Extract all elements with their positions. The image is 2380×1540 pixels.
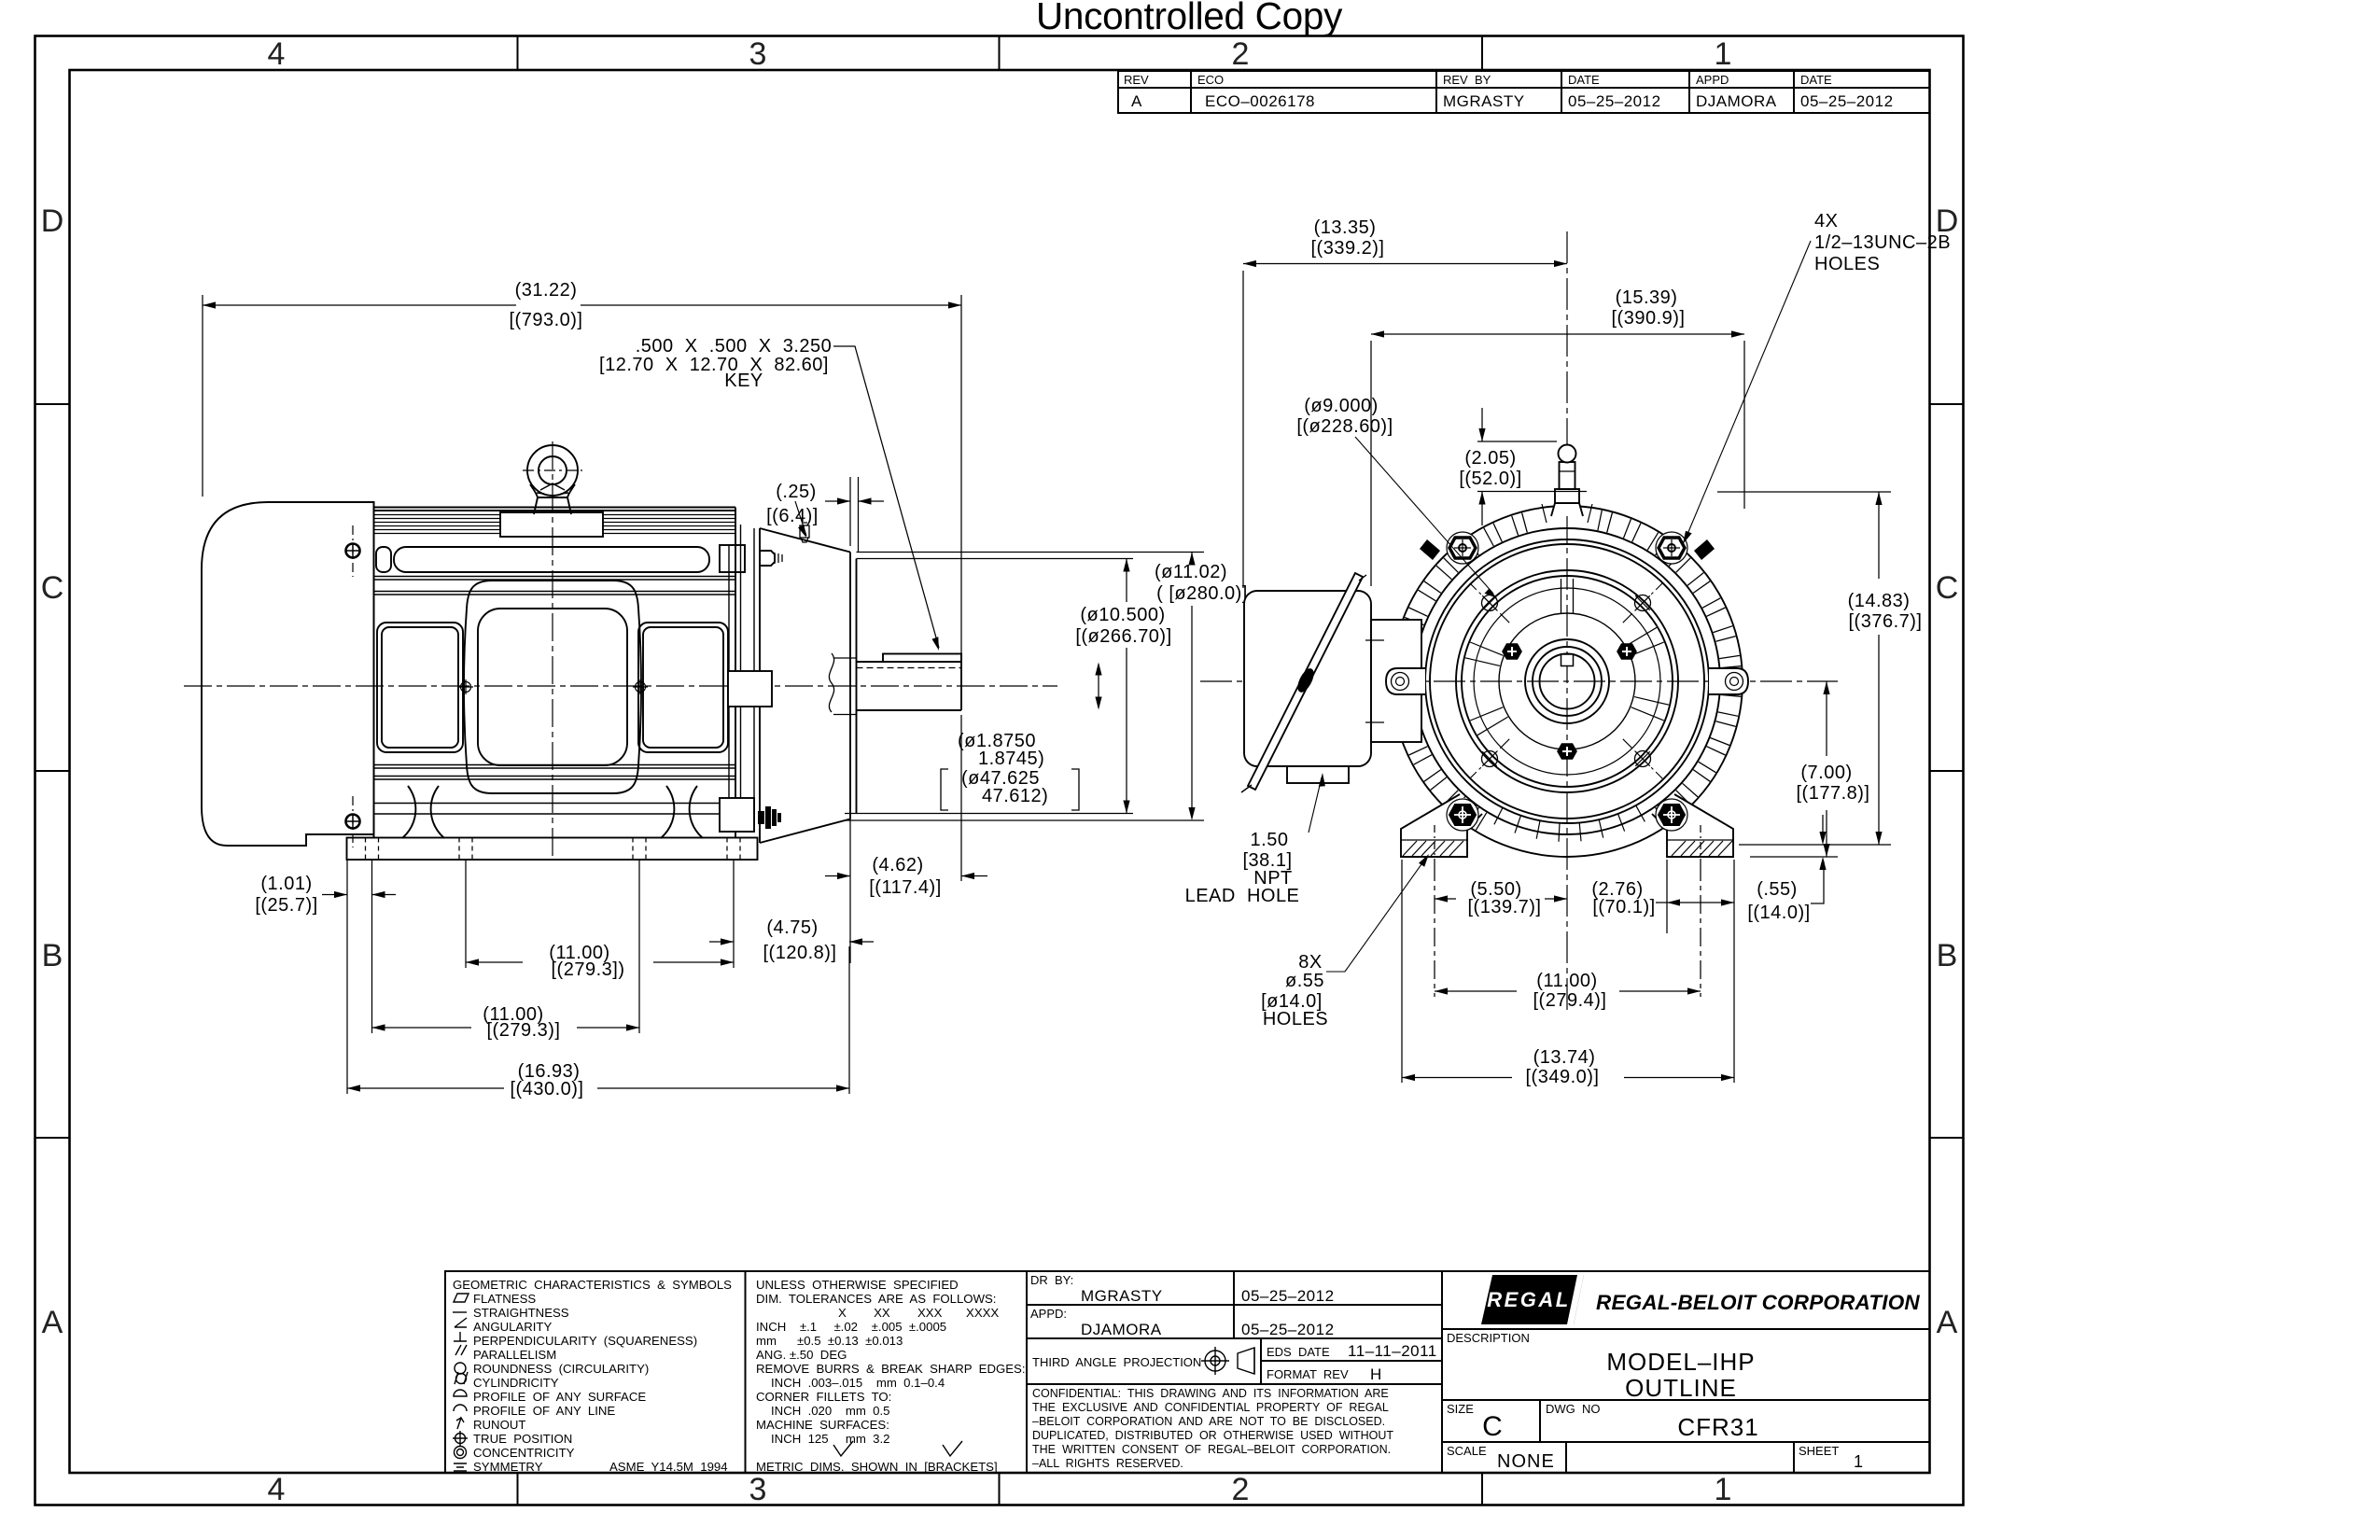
- svg-text:RUNOUT: RUNOUT: [473, 1418, 525, 1432]
- svg-text:[(139.7)]: [(139.7)]: [1468, 897, 1542, 917]
- svg-text:8X: 8X: [1298, 952, 1322, 973]
- svg-text:H: H: [1370, 1365, 1382, 1383]
- svg-text:[(793.0)]: [(793.0)]: [510, 310, 583, 330]
- svg-text:REV: REV: [1124, 73, 1149, 87]
- svg-text:ø.55: ø.55: [1285, 971, 1324, 991]
- svg-text:[(70.1)]: [(70.1)]: [1592, 897, 1655, 917]
- svg-text:(15.39): (15.39): [1616, 287, 1678, 308]
- svg-text:[(ø266.70)]: [(ø266.70)]: [1075, 626, 1171, 647]
- svg-text:[(279.3]): [(279.3]): [552, 959, 625, 980]
- svg-text:FLATNESS: FLATNESS: [473, 1292, 536, 1306]
- svg-text:(13.35): (13.35): [1314, 217, 1377, 238]
- svg-text:METRIC DIMS. SHOWN IN [BRA: METRIC DIMS. SHOWN IN [BRACKETS]: [756, 1460, 998, 1474]
- svg-text:C: C: [1936, 570, 1959, 606]
- svg-text:4X: 4X: [1814, 211, 1838, 231]
- svg-text:SHEET: SHEET: [1799, 1444, 1839, 1458]
- svg-text:DR BY:: DR BY:: [1030, 1273, 1073, 1287]
- svg-text:SYMMETRY: SYMMETRY: [473, 1460, 543, 1474]
- svg-text:[(279.4)]: [(279.4)]: [1533, 990, 1607, 1011]
- svg-text:B: B: [1937, 938, 1958, 973]
- svg-text:DATE: DATE: [1800, 73, 1832, 87]
- svg-text:[(14.0)]: [(14.0)]: [1747, 903, 1810, 923]
- svg-text:MGRASTY: MGRASTY: [1081, 1287, 1163, 1305]
- svg-text:C: C: [1482, 1411, 1503, 1442]
- svg-text:REMOVE BURRS & BREAK SHARP: REMOVE BURRS & BREAK SHARP EDGES:: [756, 1362, 1026, 1376]
- svg-text:INCH 125 mm 3.2: INCH 125 mm 3.2: [771, 1432, 890, 1446]
- svg-text:PROFILE OF ANY LINE: PROFILE OF ANY LINE: [473, 1404, 615, 1418]
- svg-text:DESCRIPTION: DESCRIPTION: [1447, 1331, 1530, 1345]
- svg-text:CONFIDENTIAL: THIS DRAWING: CONFIDENTIAL: THIS DRAWING AND ITS INFOR…: [1032, 1387, 1389, 1400]
- svg-text:–ALL RIGHTS RESERVED.: –ALL RIGHTS RESERVED.: [1032, 1457, 1183, 1470]
- svg-text:( [ø280.0)]: ( [ø280.0)]: [1156, 583, 1248, 604]
- svg-text:DWG NO: DWG NO: [1546, 1402, 1601, 1416]
- svg-text:3: 3: [749, 1472, 767, 1507]
- svg-text:1.50: 1.50: [1251, 830, 1289, 850]
- svg-text:OUTLINE: OUTLINE: [1625, 1374, 1737, 1402]
- svg-text:HOLES: HOLES: [1263, 1009, 1328, 1029]
- svg-text:05–25–2012: 05–25–2012: [1241, 1287, 1335, 1305]
- svg-text:FORMAT REV: FORMAT REV: [1267, 1367, 1349, 1381]
- svg-text:(31.22): (31.22): [515, 280, 578, 301]
- svg-text:ROUNDNESS (CIRCULARITY): ROUNDNESS (CIRCULARITY): [473, 1362, 649, 1376]
- svg-text:[(349.0)]: [(349.0)]: [1526, 1067, 1600, 1087]
- svg-text:(13.74): (13.74): [1533, 1047, 1596, 1068]
- svg-text:05–25–2012: 05–25–2012: [1568, 92, 1661, 110]
- svg-text:A: A: [1937, 1305, 1958, 1340]
- svg-text:REGAL-BELOIT CORPORATION: REGAL-BELOIT CORPORATION: [1596, 1291, 1920, 1314]
- svg-text:PARALLELISM: PARALLELISM: [473, 1348, 556, 1362]
- svg-text:EDS DATE: EDS DATE: [1267, 1345, 1330, 1359]
- svg-text:APPD:: APPD:: [1030, 1307, 1067, 1321]
- svg-text:INCH .003–.015 mm 0.1–0.4: INCH .003–.015 mm 0.1–0.4: [771, 1376, 945, 1390]
- svg-text:NONE: NONE: [1497, 1451, 1555, 1472]
- svg-text:.500 X .500 X 3.250: .500 X .500 X 3.250: [636, 336, 833, 357]
- svg-text:MACHINE SURFACES:: MACHINE SURFACES:: [756, 1418, 889, 1432]
- svg-text:–BELOIT CORPORATION AND ARE: –BELOIT CORPORATION AND ARE NOT TO BE DI…: [1032, 1415, 1385, 1428]
- svg-text:DJAMORA: DJAMORA: [1081, 1321, 1162, 1338]
- svg-text:1: 1: [1854, 1452, 1863, 1471]
- svg-text:mm ±0.5 ±0.13 ±0.013: mm ±0.5 ±0.13 ±0.013: [756, 1334, 903, 1348]
- svg-text:(.55): (.55): [1757, 879, 1798, 900]
- svg-text:05–25–2012: 05–25–2012: [1800, 92, 1894, 110]
- svg-text:CFR31: CFR31: [1677, 1413, 1758, 1441]
- svg-text:B: B: [42, 938, 63, 973]
- svg-text:SIZE: SIZE: [1447, 1402, 1474, 1416]
- svg-text:[(120.8)]: [(120.8)]: [763, 943, 837, 963]
- svg-text:[(177.8)]: [(177.8)]: [1797, 783, 1870, 804]
- svg-text:INCH .020 mm 0.5: INCH .020 mm 0.5: [771, 1404, 890, 1418]
- svg-text:[(430.0)]: [(430.0)]: [511, 1079, 584, 1099]
- svg-text:47.612): 47.612): [982, 786, 1048, 806]
- svg-text:(4.75): (4.75): [766, 917, 818, 938]
- svg-text:STRAIGHTNESS: STRAIGHTNESS: [473, 1306, 569, 1320]
- svg-text:3: 3: [749, 36, 767, 72]
- svg-text:DJAMORA: DJAMORA: [1696, 92, 1777, 110]
- svg-text:11–11–2011: 11–11–2011: [1348, 1342, 1437, 1360]
- svg-text:KEY: KEY: [724, 371, 763, 391]
- svg-text:4: 4: [268, 36, 286, 72]
- svg-text:[12.70 X 12.70 X 82.60]: [12.70 X 12.70 X 82.60]: [599, 355, 829, 375]
- svg-text:DUPLICATED, DISTRIBUTED OR: DUPLICATED, DISTRIBUTED OR OTHERWISE USE…: [1032, 1429, 1393, 1442]
- svg-text:[(25.7)]: [(25.7)]: [255, 895, 317, 916]
- svg-text:(11.00): (11.00): [1536, 971, 1597, 991]
- svg-text:MGRASTY: MGRASTY: [1443, 92, 1525, 110]
- svg-text:HOLES: HOLES: [1814, 254, 1880, 274]
- svg-text:A: A: [42, 1305, 63, 1340]
- svg-text:PERPENDICULARITY (SQUARENESS): PERPENDICULARITY (SQUARENESS): [473, 1334, 697, 1348]
- svg-text:(ø10.500): (ø10.500): [1080, 605, 1165, 625]
- svg-text:[(ø228.60)]: [(ø228.60)]: [1296, 416, 1393, 437]
- svg-text:[(6.4)]: [(6.4)]: [766, 506, 819, 526]
- svg-text:UNLESS OTHERWISE SPECIFIED: UNLESS OTHERWISE SPECIFIED: [756, 1278, 959, 1292]
- svg-text:CONCENTRICITY: CONCENTRICITY: [473, 1446, 575, 1460]
- svg-text:REV BY: REV BY: [1443, 73, 1491, 87]
- svg-text:A: A: [1131, 92, 1142, 110]
- svg-text:APPD: APPD: [1696, 73, 1729, 87]
- svg-text:ASME Y14.5M 1994: ASME Y14.5M 1994: [609, 1460, 728, 1474]
- svg-text:[(52.0)]: [(52.0)]: [1459, 469, 1521, 489]
- svg-text:[(390.9)]: [(390.9)]: [1612, 308, 1686, 329]
- svg-text:ANG. ±.50 DEG: ANG. ±.50 DEG: [756, 1348, 847, 1362]
- svg-text:PROFILE OF ANY SURFACE: PROFILE OF ANY SURFACE: [473, 1390, 646, 1404]
- svg-text:[(117.4)]: [(117.4)]: [869, 877, 942, 898]
- svg-text:THIRD ANGLE PROJECTION: THIRD ANGLE PROJECTION: [1032, 1355, 1201, 1369]
- svg-text:CYLINDRICITY: CYLINDRICITY: [473, 1376, 559, 1390]
- svg-text:(14.83): (14.83): [1848, 591, 1911, 611]
- svg-text:C: C: [41, 570, 64, 606]
- svg-text:DATE: DATE: [1568, 73, 1600, 87]
- svg-text:(ø9.000): (ø9.000): [1304, 396, 1379, 416]
- svg-text:2: 2: [1232, 1472, 1250, 1507]
- svg-text:(7.00): (7.00): [1800, 763, 1852, 783]
- svg-text:D: D: [41, 203, 64, 239]
- svg-text:X XX XXX X: X XX XXX XXXX: [838, 1306, 999, 1320]
- svg-text:ECO: ECO: [1197, 73, 1224, 87]
- svg-text:(1.01): (1.01): [260, 874, 312, 894]
- svg-text:THE EXCLUSIVE AND CONFIDENT: THE EXCLUSIVE AND CONFIDENTIAL PROPERTY …: [1032, 1401, 1389, 1414]
- svg-text:1.8745): 1.8745): [978, 749, 1044, 769]
- svg-text:1/2–13UNC–2B: 1/2–13UNC–2B: [1814, 232, 1951, 253]
- svg-text:CORNER FILLETS TO:: CORNER FILLETS TO:: [756, 1390, 891, 1404]
- svg-text:[(339.2)]: [(339.2)]: [1311, 238, 1385, 259]
- svg-text:TRUE POSITION: TRUE POSITION: [473, 1432, 572, 1446]
- svg-text:THE WRITTEN CONSENT OF REG: THE WRITTEN CONSENT OF REGAL–BELOIT CORP…: [1032, 1443, 1391, 1456]
- svg-text:1: 1: [1715, 36, 1732, 72]
- svg-text:(.25): (.25): [776, 482, 817, 502]
- svg-text:(4.62): (4.62): [872, 855, 923, 875]
- svg-text:DIM. TOLERANCES ARE AS FOL: DIM. TOLERANCES ARE AS FOLLOWS:: [756, 1292, 996, 1306]
- svg-text:[(279.3)]: [(279.3)]: [487, 1020, 561, 1041]
- svg-text:ECO–0026178: ECO–0026178: [1205, 92, 1315, 110]
- svg-text:05–25–2012: 05–25–2012: [1241, 1321, 1335, 1338]
- svg-text:4: 4: [268, 1472, 286, 1507]
- svg-text:SCALE: SCALE: [1447, 1444, 1487, 1458]
- svg-text:MODEL–IHP: MODEL–IHP: [1606, 1348, 1755, 1376]
- svg-text:ANGULARITY: ANGULARITY: [473, 1320, 552, 1334]
- svg-text:LEAD HOLE: LEAD HOLE: [1185, 886, 1300, 906]
- svg-text:GEOMETRIC CHARACTERISTICS &: GEOMETRIC CHARACTERISTICS & SYMBOLS: [453, 1278, 732, 1292]
- svg-text:INCH ±.1 ±.02 ±.005: INCH ±.1 ±.02 ±.005 ±.0005: [756, 1320, 946, 1334]
- svg-text:1: 1: [1715, 1472, 1732, 1507]
- svg-text:[(376.7)]: [(376.7)]: [1849, 611, 1923, 632]
- svg-text:2: 2: [1232, 36, 1250, 72]
- svg-text:Uncontrolled Copy: Uncontrolled Copy: [1036, 0, 1343, 37]
- svg-text:(2.05): (2.05): [1464, 448, 1516, 469]
- svg-text:REGAL: REGAL: [1487, 1288, 1571, 1311]
